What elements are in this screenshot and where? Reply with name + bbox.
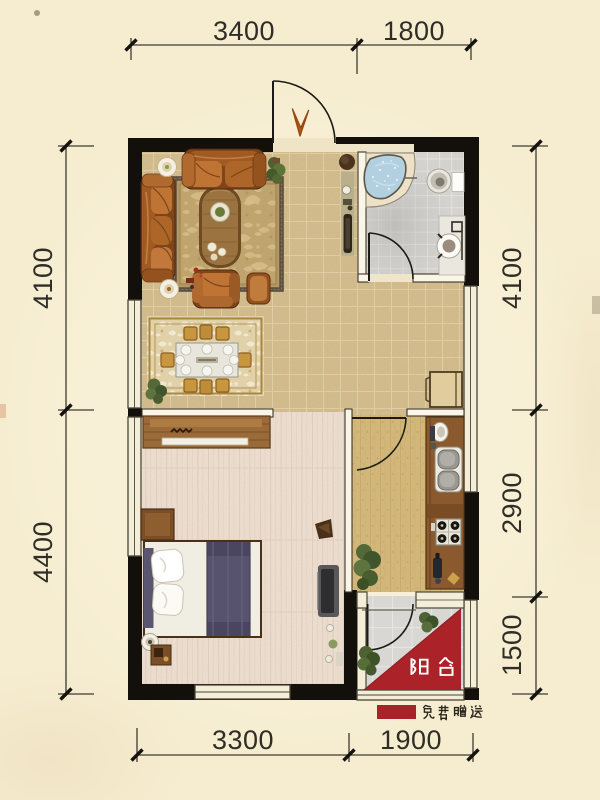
- svg-text:1500: 1500: [497, 614, 527, 676]
- svg-text:3300: 3300: [212, 725, 274, 755]
- svg-text:4100: 4100: [28, 247, 58, 309]
- svg-text:4100: 4100: [497, 247, 527, 309]
- svg-text:2900: 2900: [497, 472, 527, 534]
- svg-text:1800: 1800: [383, 16, 445, 46]
- svg-text:3400: 3400: [213, 16, 275, 46]
- svg-text:4400: 4400: [28, 521, 58, 583]
- svg-text:1900: 1900: [380, 725, 442, 755]
